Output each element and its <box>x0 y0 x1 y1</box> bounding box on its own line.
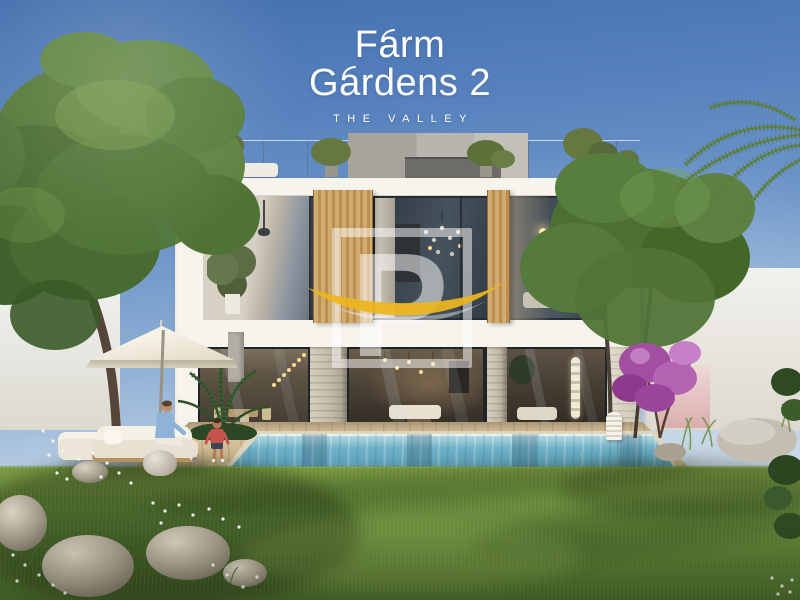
pool-lantern <box>606 412 622 440</box>
stone-pillar <box>487 347 507 430</box>
foreground-rocks-flowers <box>0 415 290 600</box>
sunlit-patch <box>240 521 580 591</box>
timber-slat-panel <box>487 190 510 323</box>
palm-fronds <box>655 90 800 245</box>
logo-name-line2: Gardens 2 <box>250 64 550 104</box>
leaf-accent <box>381 29 395 41</box>
window-mullion <box>373 196 375 320</box>
window-mullion <box>309 196 311 320</box>
wall-art <box>449 361 469 393</box>
villa-rendering-photo: P Farm Gardens 2 THE VALLEY <box>0 0 800 600</box>
corner-shrub-flowers <box>752 450 800 600</box>
logo-name-line1: Farm <box>250 26 550 66</box>
living-pendant-lights <box>373 351 449 385</box>
project-logo: Farm Gardens 2 THE VALLEY <box>250 26 550 125</box>
living-sofa <box>389 405 441 419</box>
leaf-accent <box>342 66 356 78</box>
dark-shelving <box>395 224 420 282</box>
shadow-band <box>468 484 800 571</box>
window-mullion <box>460 196 462 320</box>
curtain <box>375 198 395 318</box>
logo-tagline: THE VALLEY <box>250 113 550 125</box>
living-room-window <box>349 349 483 428</box>
timber-slat-panel <box>313 190 373 323</box>
stone-pillar <box>310 347 347 430</box>
